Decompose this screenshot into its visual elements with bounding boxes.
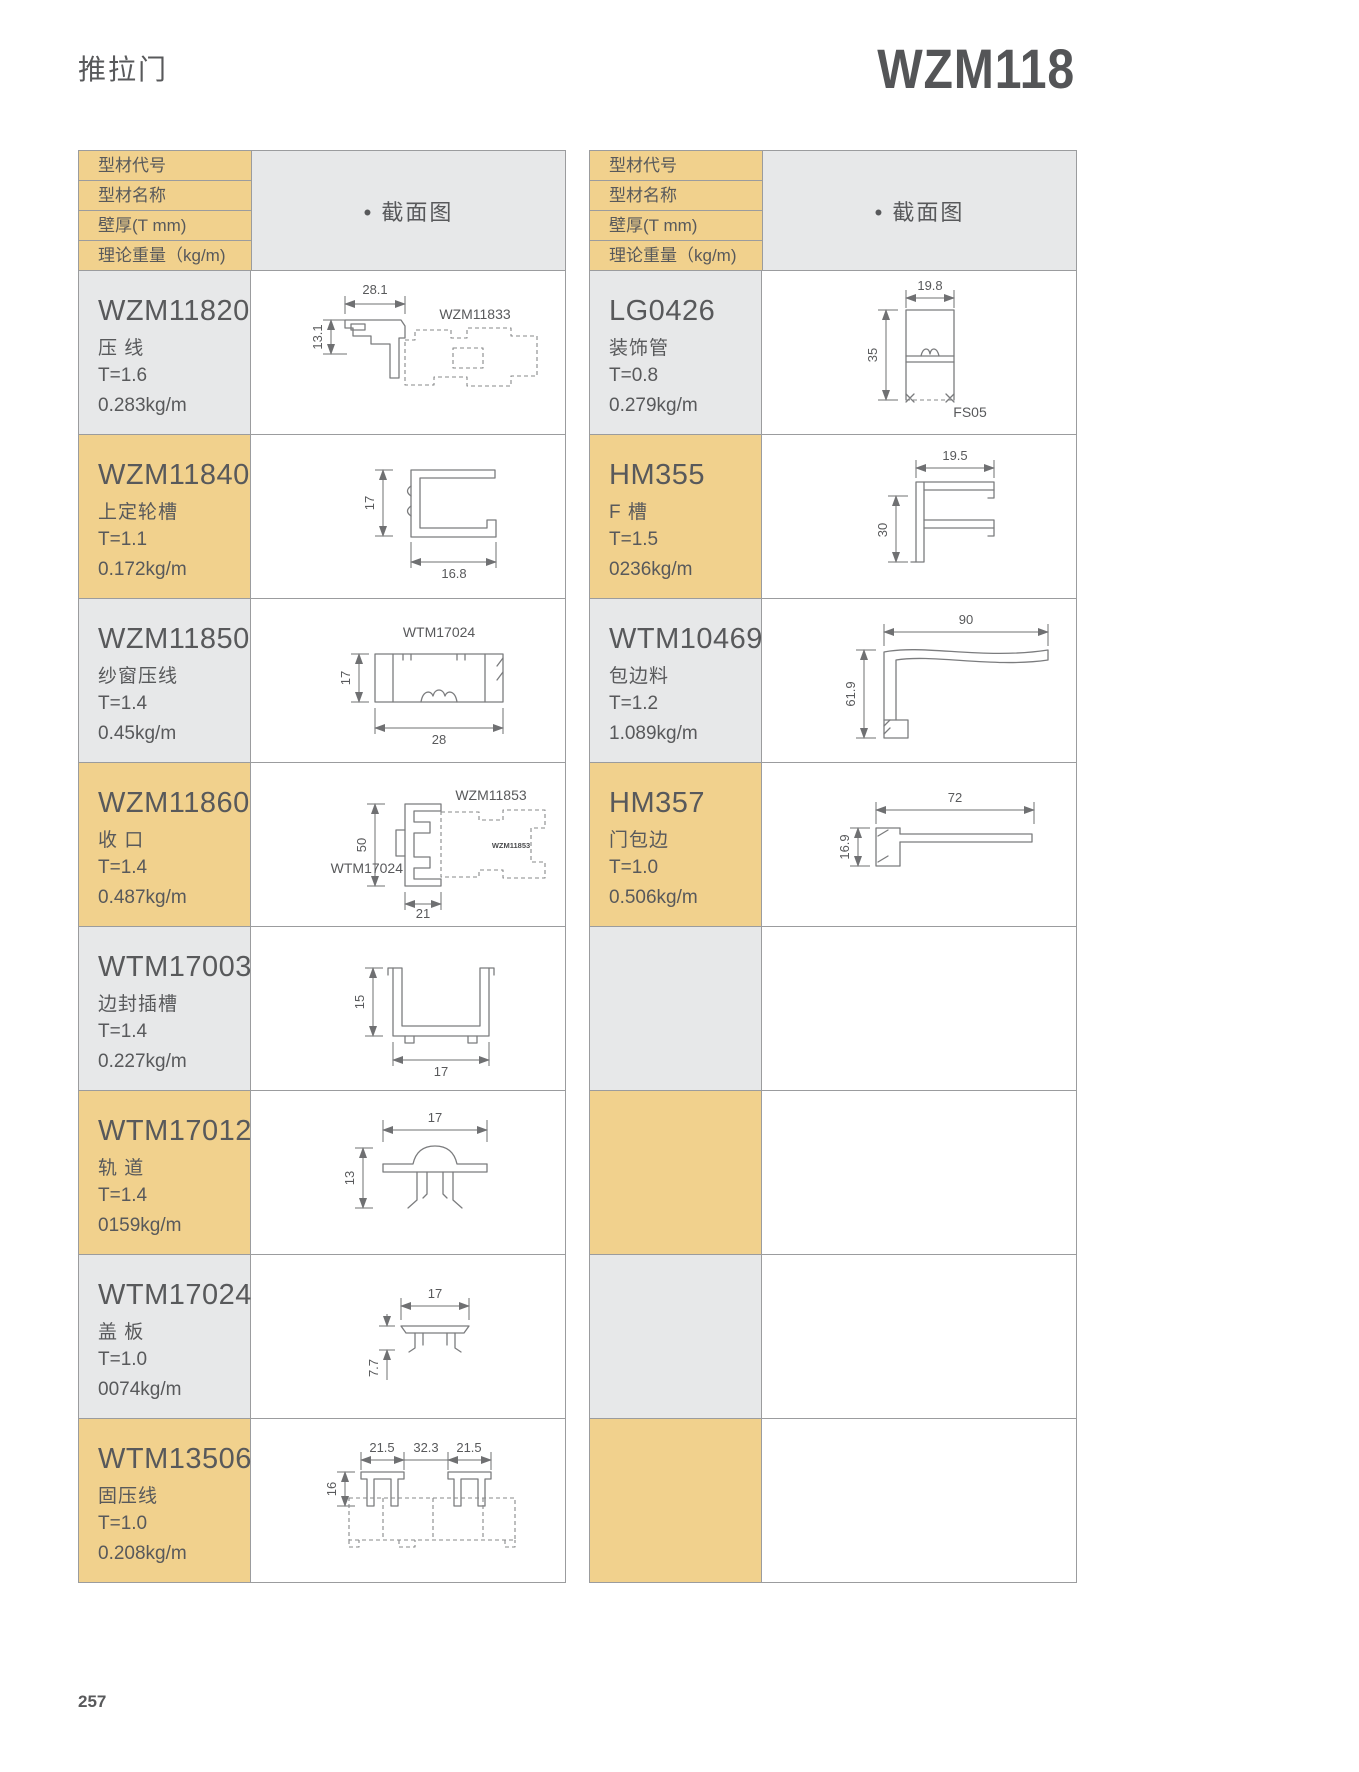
table-row: WTM10469 包边料 T=1.2 1.089kg/m 90 61.9	[590, 598, 1076, 762]
profile-thickness: T=1.0	[98, 1509, 238, 1538]
profile-code: WTM17003	[98, 951, 238, 984]
profile-name: 边封插槽	[98, 989, 238, 1016]
table-row	[590, 1254, 1076, 1418]
profile-info-cell: WTM10469 包边料 T=1.2 1.089kg/m	[590, 599, 762, 762]
section-diagram-cell	[762, 1091, 1076, 1254]
profile-thickness: T=0.8	[609, 361, 749, 390]
profile-info-cell: HM355 F 槽 T=1.5 0236kg/m	[590, 435, 762, 598]
profile-thickness: T=1.5	[609, 525, 749, 554]
profile-name: 上定轮槽	[98, 497, 238, 524]
header-theoretical-weight: 理论重量（kg/m)	[79, 241, 251, 270]
profile-weight: 0.172kg/m	[98, 555, 238, 584]
table-header: 型材代号 型材名称 壁厚(T mm) 理论重量（kg/m) • 截面图	[79, 151, 565, 270]
svg-text:7.7: 7.7	[366, 1358, 381, 1376]
profile-weight: 0159kg/m	[98, 1211, 238, 1240]
profile-weight: 0.208kg/m	[98, 1539, 238, 1568]
profile-thickness: T=1.2	[609, 689, 749, 718]
page-number: 257	[78, 1692, 106, 1712]
section-diagram-cell: 90 61.9	[762, 599, 1076, 762]
profile-info-cell: WZM11860 收 口 T=1.4 0.487kg/m	[79, 763, 251, 926]
svg-text:16.8: 16.8	[441, 566, 466, 581]
profile-name: 门包边	[609, 825, 749, 852]
section-diagram: 19.5 30	[764, 442, 1074, 592]
page-model-title: WZM118	[877, 36, 1075, 101]
svg-text:61.9: 61.9	[843, 681, 858, 706]
profile-code: WTM17024	[98, 1279, 238, 1312]
svg-text:90: 90	[959, 612, 973, 627]
profile-name: 收 口	[98, 825, 238, 852]
section-diagram-cell	[762, 1419, 1076, 1582]
header-theoretical-weight: 理论重量（kg/m)	[590, 241, 762, 270]
section-diagram: WZM11853 50 WTM17024 WZM11853 21	[253, 770, 563, 920]
section-diagram: 72 16.9	[764, 770, 1074, 920]
table-row	[590, 1418, 1076, 1582]
profile-thickness: T=1.4	[98, 1017, 238, 1046]
profile-weight: 1.089kg/m	[609, 719, 749, 748]
profile-code: WTM10469	[609, 623, 749, 656]
profile-info-cell: WTM17024 盖 板 T=1.0 0074kg/m	[79, 1255, 251, 1418]
section-diagram-cell: 17 16.8	[251, 435, 565, 598]
svg-text:30: 30	[875, 522, 890, 536]
profile-info-cell	[590, 1419, 762, 1582]
profile-info-cell: HM357 门包边 T=1.0 0.506kg/m	[590, 763, 762, 926]
svg-text:28: 28	[432, 732, 446, 747]
profile-code: WZM11840	[98, 459, 238, 492]
profile-name: 盖 板	[98, 1317, 238, 1344]
section-diagram: 19.8 35 FS05	[764, 278, 1074, 428]
profile-info-cell	[590, 1091, 762, 1254]
profile-code: WZM11860	[98, 787, 238, 820]
section-diagram: 17 16.8	[253, 442, 563, 592]
section-diagram-cell: 21.5 32.3 21.5 16	[251, 1419, 565, 1582]
table-row	[590, 926, 1076, 1090]
svg-text:28.1: 28.1	[362, 282, 387, 297]
table-row: WTM13506 固压线 T=1.0 0.208kg/m 21.5 32.3 2…	[79, 1418, 565, 1582]
profile-code: WZM11820	[98, 295, 238, 328]
svg-text:16: 16	[324, 1481, 339, 1495]
table-row: HM355 F 槽 T=1.5 0236kg/m 19.5 30	[590, 434, 1076, 598]
svg-text:16.9: 16.9	[837, 834, 852, 859]
svg-text:17: 17	[428, 1286, 442, 1301]
svg-text:15: 15	[352, 994, 367, 1008]
section-diagram: 28.1 WZM11833 13.1	[253, 278, 563, 428]
table-row: HM357 门包边 T=1.0 0.506kg/m 72 16.9	[590, 762, 1076, 926]
profile-code: WTM17012	[98, 1115, 238, 1148]
profile-thickness: T=1.4	[98, 853, 238, 882]
section-diagram-cell: WTM17024 17 28	[251, 599, 565, 762]
table-row: WZM11860 收 口 T=1.4 0.487kg/m WZM11853 50…	[79, 762, 565, 926]
section-diagram-cell: 17 7.7	[251, 1255, 565, 1418]
svg-text:72: 72	[948, 790, 962, 805]
profile-weight: 0.45kg/m	[98, 719, 238, 748]
svg-text:WZM11833: WZM11833	[439, 306, 511, 322]
svg-text:17: 17	[362, 495, 377, 509]
profile-weight: 0074kg/m	[98, 1375, 238, 1404]
profile-info-cell: WTM13506 固压线 T=1.0 0.208kg/m	[79, 1419, 251, 1582]
section-diagram-cell: WZM11853 50 WTM17024 WZM11853 21	[251, 763, 565, 926]
table-row	[590, 1090, 1076, 1254]
svg-text:17: 17	[338, 670, 353, 684]
header-profile-code: 型材代号	[79, 151, 251, 181]
profile-info-cell: WTM17003 边封插槽 T=1.4 0.227kg/m	[79, 927, 251, 1090]
svg-text:21.5: 21.5	[369, 1440, 394, 1455]
section-diagram: 90 61.9	[764, 606, 1074, 756]
profile-code: WTM13506	[98, 1443, 238, 1476]
table-row: LG0426 装饰管 T=0.8 0.279kg/m 19.8 35	[590, 270, 1076, 434]
header-profile-name: 型材名称	[79, 181, 251, 211]
profile-weight: 0236kg/m	[609, 555, 749, 584]
header-section-view: • 截面图	[763, 151, 1076, 270]
profile-weight: 0.227kg/m	[98, 1047, 238, 1076]
profile-table-right: 型材代号 型材名称 壁厚(T mm) 理论重量（kg/m) • 截面图 LG04…	[589, 150, 1077, 1583]
svg-text:WZM11853: WZM11853	[492, 841, 530, 850]
section-diagram: 15 17	[253, 934, 563, 1084]
profile-name: 压 线	[98, 333, 238, 360]
svg-text:32.3: 32.3	[413, 1440, 438, 1455]
page-category: 推拉门	[78, 48, 168, 88]
profile-info-cell	[590, 1255, 762, 1418]
section-diagram-cell	[762, 1255, 1076, 1418]
table-row: WTM17012 轨 道 T=1.4 0159kg/m 17 13	[79, 1090, 565, 1254]
profile-thickness: T=1.0	[98, 1345, 238, 1374]
header-label-column: 型材代号 型材名称 壁厚(T mm) 理论重量（kg/m)	[79, 151, 252, 270]
header-profile-name: 型材名称	[590, 181, 762, 211]
header-section-view: • 截面图	[252, 151, 565, 270]
svg-text:FS05: FS05	[953, 404, 987, 420]
section-diagram-cell: 28.1 WZM11833 13.1	[251, 271, 565, 434]
svg-text:13.1: 13.1	[310, 324, 325, 349]
section-diagram: 17 13	[253, 1098, 563, 1248]
profile-info-cell: WTM17012 轨 道 T=1.4 0159kg/m	[79, 1091, 251, 1254]
header-wall-thickness: 壁厚(T mm)	[79, 211, 251, 241]
profile-info-cell: WZM11850 纱窗压线 T=1.4 0.45kg/m	[79, 599, 251, 762]
section-diagram-cell	[762, 927, 1076, 1090]
profile-code: LG0426	[609, 295, 749, 328]
profile-name: 装饰管	[609, 333, 749, 360]
profile-name: 轨 道	[98, 1153, 238, 1180]
svg-text:17: 17	[434, 1064, 448, 1079]
section-diagram: 17 7.7	[253, 1262, 563, 1412]
profile-table-left: 型材代号 型材名称 壁厚(T mm) 理论重量（kg/m) • 截面图 WZM1…	[78, 150, 566, 1583]
svg-text:50: 50	[354, 837, 369, 851]
profile-thickness: T=1.4	[98, 689, 238, 718]
table-row: WZM11840 上定轮槽 T=1.1 0.172kg/m 17 16.8	[79, 434, 565, 598]
profile-name: 固压线	[98, 1481, 238, 1508]
profile-thickness: T=1.0	[609, 853, 749, 882]
header-wall-thickness: 壁厚(T mm)	[590, 211, 762, 241]
profile-thickness: T=1.4	[98, 1181, 238, 1210]
svg-text:21.5: 21.5	[456, 1440, 481, 1455]
profile-info-cell: LG0426 装饰管 T=0.8 0.279kg/m	[590, 271, 762, 434]
svg-text:19.5: 19.5	[942, 448, 967, 463]
svg-text:13: 13	[342, 1170, 357, 1184]
profile-thickness: T=1.1	[98, 525, 238, 554]
profile-info-cell: WZM11840 上定轮槽 T=1.1 0.172kg/m	[79, 435, 251, 598]
section-diagram-cell: 17 13	[251, 1091, 565, 1254]
header-profile-code: 型材代号	[590, 151, 762, 181]
profile-weight: 0.506kg/m	[609, 883, 749, 912]
section-diagram: 21.5 32.3 21.5 16	[253, 1426, 563, 1576]
svg-text:WZM11853: WZM11853	[455, 787, 527, 803]
section-diagram-cell: 72 16.9	[762, 763, 1076, 926]
profile-info-cell	[590, 927, 762, 1090]
section-diagram: WTM17024 17 28	[253, 606, 563, 756]
table-row: WTM17003 边封插槽 T=1.4 0.227kg/m 15 1	[79, 926, 565, 1090]
table-row: WTM17024 盖 板 T=1.0 0074kg/m 17	[79, 1254, 565, 1418]
svg-text:35: 35	[865, 347, 880, 361]
profile-code: HM357	[609, 787, 749, 820]
svg-text:17: 17	[428, 1110, 442, 1125]
profile-weight: 0.283kg/m	[98, 391, 238, 420]
svg-text:19.8: 19.8	[917, 278, 942, 293]
section-diagram-cell: 19.8 35 FS05	[762, 271, 1076, 434]
table-header: 型材代号 型材名称 壁厚(T mm) 理论重量（kg/m) • 截面图	[590, 151, 1076, 270]
profile-name: 包边料	[609, 661, 749, 688]
svg-text:WTM17024: WTM17024	[331, 860, 404, 876]
profile-code: HM355	[609, 459, 749, 492]
profile-name: F 槽	[609, 497, 749, 524]
profile-weight: 0.279kg/m	[609, 391, 749, 420]
table-row: WZM11820 压 线 T=1.6 0.283kg/m 28.1 WZM118…	[79, 270, 565, 434]
profile-weight: 0.487kg/m	[98, 883, 238, 912]
section-diagram-cell: 19.5 30	[762, 435, 1076, 598]
profile-info-cell: WZM11820 压 线 T=1.6 0.283kg/m	[79, 271, 251, 434]
section-diagram-cell: 15 17	[251, 927, 565, 1090]
table-row: WZM11850 纱窗压线 T=1.4 0.45kg/m WTM17024	[79, 598, 565, 762]
header-label-column: 型材代号 型材名称 壁厚(T mm) 理论重量（kg/m)	[590, 151, 763, 270]
svg-text:21: 21	[416, 906, 430, 920]
profile-code: WZM11850	[98, 623, 238, 656]
svg-text:WTM17024: WTM17024	[403, 624, 476, 640]
profile-thickness: T=1.6	[98, 361, 238, 390]
catalog-page: 推拉门 WZM118 型材代号 型材名称 壁厚(T mm) 理论重量（kg/m)…	[0, 0, 1359, 1772]
profile-name: 纱窗压线	[98, 661, 238, 688]
